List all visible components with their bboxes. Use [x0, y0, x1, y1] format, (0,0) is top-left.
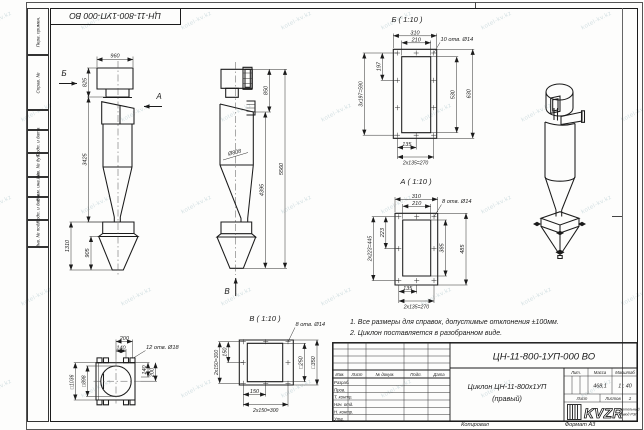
- dim-2x135-b: 2х135=270: [402, 161, 429, 167]
- scale-value: 1 : 40: [618, 384, 632, 390]
- holes-note-support: 12 отв. Ø18: [146, 345, 180, 351]
- technical-notes: 1. Все размеры для справок, допустимые о…: [350, 318, 636, 339]
- view-a-title: А ( 1:10 ): [399, 177, 432, 186]
- strip-box-sprav: Справ. №: [27, 55, 49, 110]
- holes-note-v: 8 отв. Ø14: [296, 322, 326, 328]
- col-data: Дата: [432, 372, 445, 377]
- dim-140-top: 140: [116, 346, 126, 352]
- left-margin-strip: Перв. примен. Справ. № Подп. и дата Инв.…: [27, 8, 50, 422]
- dim-850: 850: [263, 85, 269, 95]
- view-b-title: Б ( 1:10 ): [391, 15, 423, 24]
- mass-value: 468,1: [593, 384, 607, 390]
- strip-box-invpodl: Инв. № подл.: [27, 220, 49, 247]
- strip-label: Инв. № подл.: [36, 219, 41, 248]
- section-arrow-a-label: А: [155, 92, 161, 101]
- dim-310-a: 310: [412, 194, 422, 200]
- isometric-view: [500, 60, 632, 290]
- dim-140-right: 140: [142, 364, 148, 374]
- strip-label: Перв. примен.: [36, 16, 41, 47]
- dim-135-b: 135: [402, 142, 412, 148]
- col-podp: Подп.: [410, 372, 421, 377]
- section-arrow-v-label: В: [224, 287, 230, 296]
- dim-200-top: 200: [119, 336, 130, 342]
- dim-223: 223: [380, 227, 386, 238]
- title-block: Изм. Лист № докум. Подп. Дата Разраб. Пр…: [332, 342, 638, 422]
- dim-210: 210: [411, 37, 422, 43]
- holes-note-a: 8 отв. Ø14: [442, 199, 472, 205]
- col-izm: Изм.: [335, 372, 344, 377]
- dim-200-right: 200: [150, 367, 156, 378]
- watermark-text: kotel-kv.kz: [0, 11, 13, 32]
- scale-label: Масштаб: [615, 370, 635, 375]
- sheets-value: 1: [629, 396, 632, 402]
- dim-sq898: □898: [82, 375, 88, 387]
- logo-text: KVZR: [584, 406, 623, 421]
- col-doc: № докум.: [376, 372, 395, 377]
- dim-3425: 3425: [83, 152, 89, 165]
- part-name-line2: (правый): [492, 394, 522, 403]
- dim-2x150-b: 2х150=300: [252, 408, 279, 414]
- side-view: Ø808 850 4395 5560 В: [195, 42, 323, 304]
- logo-sub2: завод РЭП: [619, 413, 638, 417]
- dim-385: 385: [440, 242, 446, 252]
- dim-210-a: 210: [411, 201, 422, 207]
- dim-825: 825: [83, 77, 89, 87]
- zone-tick-top: [475, 2, 476, 8]
- dim-2x223: 2х223=445: [367, 236, 373, 263]
- row-nkontr: Н. контр.: [334, 409, 353, 414]
- dim-530: 530: [451, 89, 457, 99]
- strip-box-podp2: Подп. и дата: [27, 197, 49, 220]
- format-label: Формат А3: [540, 422, 620, 428]
- dim-sq350: □350: [311, 355, 317, 368]
- flange-a-view: А ( 1:10 ) 310 210 8 отв. Ø14 223 2х223=…: [355, 175, 487, 320]
- dim-4395: 4395: [259, 183, 265, 196]
- section-arrow-b-label: Б: [61, 69, 66, 78]
- strip-box-perv: Перв. примен.: [27, 8, 49, 55]
- dim-2x135-a: 2х135=270: [403, 305, 430, 311]
- sheet-label: Лист: [576, 396, 588, 401]
- copied-label: Копировал: [435, 422, 515, 428]
- dim-150-l: 150: [222, 347, 228, 357]
- row-prov: Пров.: [334, 387, 345, 392]
- strip-label: Справ. №: [36, 72, 41, 93]
- dim-135-a: 135: [403, 286, 413, 292]
- row-nachotd: Нач. отд.: [334, 402, 353, 407]
- dim-sq250: □250: [299, 355, 305, 368]
- row-razrab: Разраб.: [334, 380, 350, 385]
- holes-note-b: 10 отв. Ø14: [441, 37, 474, 43]
- flange-b-view: Б ( 1:10 ) 310 210 10 отв. Ø14 197 3х197…: [345, 12, 483, 176]
- view-v-title: В ( 1:10 ): [249, 314, 281, 323]
- note-line-2: 2. Циклон поставляется в разобранном вид…: [350, 329, 636, 340]
- flange-v-view: В ( 1:10 ) 8 отв. Ø14 150 2х150=300 □250…: [215, 312, 350, 418]
- top-doc-number-box: ЦН-11-800-1УП-000 ВО: [50, 8, 181, 25]
- dim-sq1036: □1036: [69, 375, 75, 390]
- manufacturer-logo-icon: KVZR Котельный завод РЭП: [568, 405, 640, 422]
- logo-sub1: Котельный: [620, 408, 640, 412]
- dim-630: 630: [467, 88, 473, 98]
- dim-150-b: 150: [250, 389, 260, 395]
- lit-label: Лит.: [570, 370, 581, 375]
- row-utv: Утв.: [334, 417, 344, 422]
- strip-box-podp1: Подп. и дата: [27, 130, 49, 153]
- watermark-text: kotel-kv.kz: [0, 195, 13, 216]
- dim-960: 960: [110, 54, 120, 60]
- drawing-sheet: kotel-kv.kzkotel-kv.kzkotel-kv.kzkotel-k…: [0, 0, 644, 430]
- dim-2x150-l: 2х150=300: [214, 350, 220, 377]
- strip-box-empty2: [27, 247, 49, 422]
- title-block-doc-number: ЦН-11-800-1УП-000 ВО: [493, 352, 596, 363]
- watermark-text: kotel-kv.kz: [0, 379, 13, 400]
- dim-197: 197: [376, 61, 382, 71]
- dim-905: 905: [85, 247, 91, 257]
- dim-1310: 1310: [65, 239, 71, 252]
- dim-3x197: 3х197=590: [358, 81, 364, 107]
- support-view: 200 140 12 отв. Ø18 140 200 □1036 □898: [62, 325, 180, 428]
- front-view: 960 825 3425 1310 905 Б А: [58, 40, 193, 302]
- sheets-label: Листов: [604, 396, 621, 401]
- note-line-1: 1. Все размеры для справок, допустимые о…: [350, 318, 636, 329]
- dim-5560: 5560: [279, 162, 285, 175]
- top-doc-number: ЦН-11-800-1УП-000 ВО: [50, 8, 180, 24]
- dim-485: 485: [460, 244, 466, 254]
- part-name-line1: Циклон ЦН-11-800х1УП: [468, 382, 547, 391]
- mass-label: Масса: [594, 370, 607, 375]
- row-tkontr: Т. контр.: [334, 395, 353, 400]
- dim-310: 310: [410, 30, 420, 36]
- col-list: Лист: [350, 372, 362, 377]
- strip-label: Подп. и дата: [36, 194, 41, 223]
